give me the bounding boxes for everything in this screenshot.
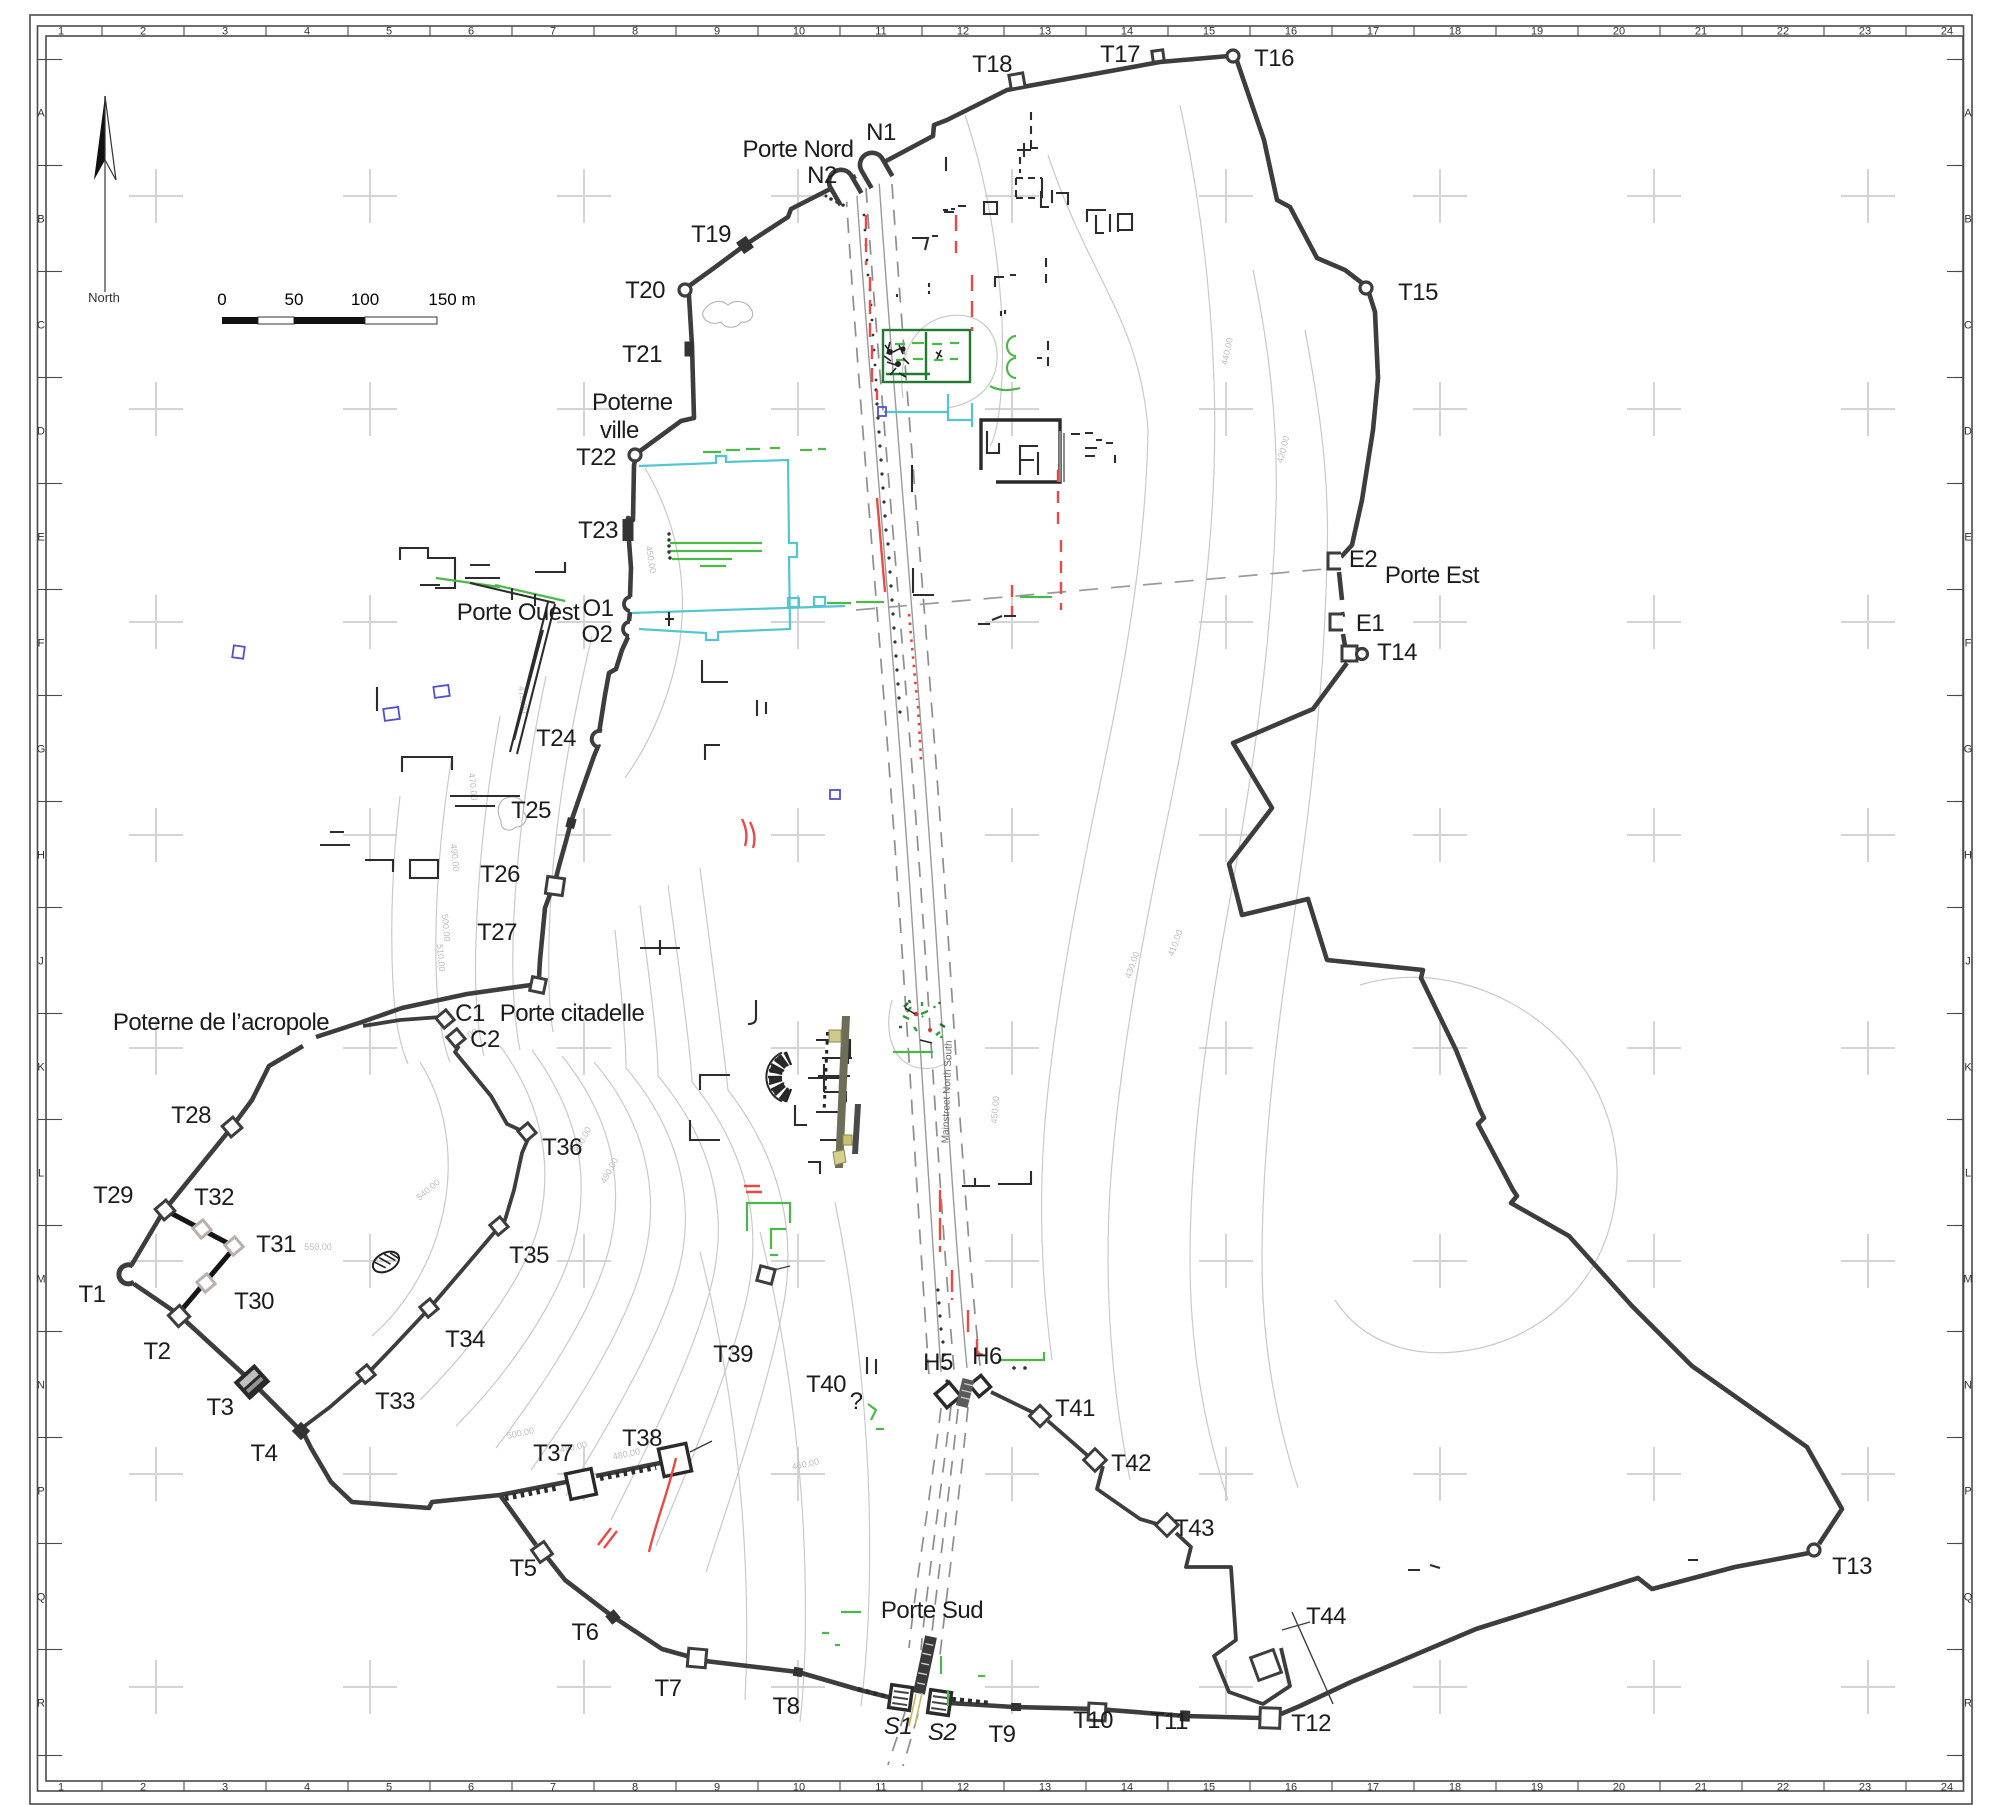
- svg-text:17: 17: [1367, 1782, 1379, 1794]
- svg-text:N2: N2: [807, 162, 837, 189]
- svg-text:2: 2: [140, 26, 146, 38]
- svg-text:T27: T27: [477, 919, 517, 946]
- svg-text:15: 15: [1203, 26, 1215, 38]
- svg-text:13: 13: [1039, 1782, 1051, 1794]
- svg-text:T39: T39: [713, 1341, 753, 1368]
- svg-text:T12: T12: [1291, 1710, 1331, 1737]
- svg-text:T24: T24: [536, 725, 576, 752]
- svg-text:C: C: [1964, 320, 1972, 332]
- svg-text:P: P: [1964, 1486, 1971, 1498]
- svg-text:460.00: 460.00: [791, 1456, 820, 1472]
- svg-text:440.00: 440.00: [1219, 337, 1235, 366]
- svg-text:Porte Sud: Porte Sud: [881, 1597, 983, 1624]
- svg-text:N: N: [1964, 1380, 1972, 1392]
- svg-text:T32: T32: [194, 1184, 234, 1211]
- svg-text:Q: Q: [37, 1592, 46, 1604]
- svg-text:G: G: [37, 744, 46, 756]
- svg-text:M: M: [36, 1274, 45, 1286]
- svg-text:8: 8: [632, 1782, 638, 1794]
- svg-text:5: 5: [386, 1782, 392, 1794]
- svg-text:420.00: 420.00: [1275, 435, 1291, 464]
- svg-text:50: 50: [285, 290, 304, 309]
- svg-text:F: F: [38, 638, 45, 650]
- svg-text:20: 20: [1613, 26, 1625, 38]
- svg-text:Porte citadelle: Porte citadelle: [500, 1000, 645, 1027]
- svg-text:D: D: [1964, 426, 1972, 438]
- svg-text:Porte Ouest: Porte Ouest: [457, 599, 580, 626]
- svg-text:6: 6: [468, 26, 474, 38]
- svg-text:10: 10: [793, 1782, 805, 1794]
- svg-text:14: 14: [1121, 1782, 1133, 1794]
- svg-text:23: 23: [1859, 1782, 1871, 1794]
- svg-text:13: 13: [1039, 26, 1051, 38]
- svg-text:T16: T16: [1254, 45, 1294, 72]
- svg-text:T5: T5: [509, 1555, 536, 1582]
- svg-text:K: K: [37, 1062, 45, 1074]
- svg-text:22: 22: [1777, 26, 1789, 38]
- svg-text:T6: T6: [571, 1619, 598, 1646]
- svg-text:C1: C1: [455, 1000, 485, 1027]
- svg-text:7: 7: [550, 1782, 556, 1794]
- svg-text:0: 0: [217, 290, 226, 309]
- svg-text:T15: T15: [1398, 279, 1438, 306]
- svg-text:540.00: 540.00: [414, 1177, 442, 1202]
- svg-text:T17: T17: [1100, 41, 1140, 68]
- svg-text:150 m: 150 m: [428, 290, 475, 309]
- svg-text:R: R: [37, 1698, 45, 1710]
- svg-text:T14: T14: [1377, 639, 1417, 666]
- svg-text:T28: T28: [171, 1102, 211, 1129]
- svg-text:North: North: [88, 290, 120, 305]
- svg-text:T7: T7: [654, 1675, 681, 1702]
- svg-text:T22: T22: [576, 444, 616, 471]
- svg-text:T21: T21: [622, 341, 662, 368]
- svg-text:T37: T37: [533, 1440, 573, 1467]
- svg-text:T8: T8: [772, 1693, 799, 1720]
- svg-text:2: 2: [140, 1782, 146, 1794]
- svg-text:Q: Q: [1964, 1592, 1973, 1604]
- svg-text:3: 3: [222, 1782, 228, 1794]
- svg-text:T41: T41: [1055, 1395, 1095, 1422]
- svg-text:E: E: [37, 532, 44, 544]
- svg-text:T13: T13: [1832, 1553, 1872, 1580]
- svg-text:B: B: [1964, 214, 1971, 226]
- svg-text:14: 14: [1121, 26, 1133, 38]
- svg-text:550.00: 550.00: [304, 1242, 332, 1252]
- svg-text:19: 19: [1531, 1782, 1543, 1794]
- svg-text:E: E: [1964, 532, 1971, 544]
- svg-text:B: B: [37, 214, 44, 226]
- svg-text:C: C: [37, 320, 45, 332]
- svg-text:24: 24: [1941, 26, 1953, 38]
- svg-text:18: 18: [1449, 1782, 1461, 1794]
- svg-text:S2: S2: [928, 1719, 957, 1746]
- svg-text:450.00: 450.00: [989, 1096, 1001, 1124]
- svg-text:Mainstreet North South: Mainstreet North South: [940, 1040, 955, 1143]
- svg-text:12: 12: [957, 26, 969, 38]
- svg-text:L: L: [1965, 1168, 1971, 1180]
- svg-text:17: 17: [1367, 26, 1379, 38]
- svg-text:A: A: [37, 108, 45, 120]
- svg-text:S1: S1: [884, 1713, 912, 1740]
- svg-text:D: D: [37, 426, 45, 438]
- svg-text:T31: T31: [256, 1231, 296, 1258]
- svg-text:1: 1: [58, 1782, 64, 1794]
- svg-text:M: M: [1963, 1274, 1972, 1286]
- svg-text:16: 16: [1285, 1782, 1297, 1794]
- svg-text:Poterne: Poterne: [592, 389, 673, 416]
- svg-text:O2: O2: [581, 621, 612, 648]
- svg-text:J: J: [38, 956, 44, 968]
- svg-text:H: H: [37, 850, 45, 862]
- svg-text:11: 11: [875, 26, 886, 38]
- svg-text:F: F: [1965, 638, 1972, 650]
- svg-text:R: R: [1964, 1698, 1972, 1710]
- svg-text:19: 19: [1531, 26, 1543, 38]
- svg-text:?: ?: [850, 1388, 863, 1415]
- svg-text:T26: T26: [480, 861, 520, 888]
- svg-text:T29: T29: [93, 1182, 133, 1209]
- svg-text:410.00: 410.00: [1166, 928, 1185, 957]
- svg-text:24: 24: [1941, 1782, 1953, 1794]
- svg-text:450.00: 450.00: [644, 545, 659, 574]
- svg-text:10: 10: [793, 26, 805, 38]
- svg-text:8: 8: [632, 26, 638, 38]
- svg-text:490.00: 490.00: [598, 1156, 620, 1185]
- svg-text:J: J: [1965, 956, 1971, 968]
- svg-text:T36: T36: [542, 1134, 582, 1161]
- svg-text:H5: H5: [923, 1349, 953, 1376]
- svg-text:7: 7: [550, 26, 556, 38]
- svg-text:T19: T19: [691, 221, 731, 248]
- svg-text:K: K: [1964, 1062, 1972, 1074]
- svg-text:490.00: 490.00: [449, 843, 462, 871]
- svg-text:T20: T20: [625, 277, 665, 304]
- svg-text:T11: T11: [1150, 1708, 1188, 1735]
- svg-text:500.00: 500.00: [506, 1425, 535, 1441]
- svg-text:T9: T9: [988, 1721, 1015, 1748]
- svg-text:A: A: [1964, 108, 1972, 120]
- svg-text:500.00: 500.00: [440, 914, 452, 942]
- svg-text:12: 12: [957, 1782, 969, 1794]
- svg-text:L: L: [38, 1168, 44, 1180]
- svg-text:Porte Nord: Porte Nord: [742, 136, 853, 163]
- svg-text:N1: N1: [866, 119, 896, 146]
- svg-text:N: N: [37, 1380, 45, 1392]
- svg-text:T1: T1: [78, 1281, 105, 1308]
- svg-text:20: 20: [1613, 1782, 1625, 1794]
- svg-text:16: 16: [1285, 26, 1297, 38]
- svg-text:E1: E1: [1356, 610, 1385, 637]
- svg-text:21: 21: [1695, 1782, 1707, 1794]
- svg-text:6: 6: [468, 1782, 474, 1794]
- svg-text:9: 9: [714, 1782, 720, 1794]
- svg-text:E2: E2: [1349, 546, 1378, 573]
- svg-text:H6: H6: [972, 1343, 1002, 1370]
- svg-text:T3: T3: [206, 1394, 233, 1421]
- svg-text:T42: T42: [1111, 1450, 1151, 1477]
- svg-text:T10: T10: [1073, 1707, 1113, 1734]
- svg-text:T34: T34: [445, 1326, 485, 1353]
- svg-text:4: 4: [304, 1782, 310, 1794]
- svg-text:T30: T30: [234, 1288, 274, 1315]
- svg-text:11: 11: [875, 1782, 886, 1794]
- svg-text:T18: T18: [972, 51, 1012, 78]
- svg-text:T25: T25: [511, 797, 551, 824]
- svg-text:18: 18: [1449, 26, 1461, 38]
- svg-text:15: 15: [1203, 1782, 1215, 1794]
- svg-text:C2: C2: [470, 1026, 500, 1053]
- svg-text:T2: T2: [143, 1338, 170, 1365]
- svg-text:P: P: [37, 1486, 44, 1498]
- svg-text:H: H: [1964, 850, 1972, 862]
- svg-text:Poterne de l’acropole: Poterne de l’acropole: [113, 1009, 329, 1036]
- svg-text:Porte Est: Porte Est: [1385, 562, 1480, 589]
- svg-text:100: 100: [351, 290, 379, 309]
- svg-text:23: 23: [1859, 26, 1871, 38]
- svg-text:T35: T35: [509, 1242, 549, 1269]
- svg-text:T43: T43: [1174, 1515, 1214, 1542]
- svg-text:9: 9: [714, 26, 720, 38]
- svg-text:O1: O1: [582, 595, 613, 622]
- svg-text:22: 22: [1777, 1782, 1789, 1794]
- svg-text:T4: T4: [250, 1440, 277, 1467]
- svg-text:G: G: [1964, 744, 1973, 756]
- svg-text:T44: T44: [1306, 1603, 1346, 1630]
- svg-text:1: 1: [58, 26, 64, 38]
- svg-text:5: 5: [386, 26, 392, 38]
- svg-text:T33: T33: [375, 1388, 415, 1415]
- svg-text:4: 4: [304, 26, 310, 38]
- svg-text:21: 21: [1695, 26, 1707, 38]
- svg-text:T23: T23: [578, 517, 618, 544]
- svg-text:T38: T38: [622, 1425, 662, 1452]
- svg-text:ville: ville: [600, 417, 639, 444]
- svg-text:3: 3: [222, 26, 228, 38]
- svg-text:T40: T40: [806, 1371, 846, 1398]
